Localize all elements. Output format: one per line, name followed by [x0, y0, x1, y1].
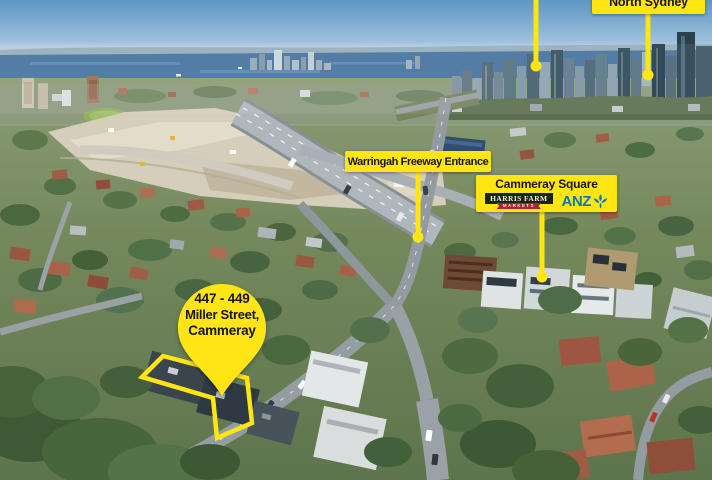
harris-farm-ribbon: MARKETS [497, 203, 541, 209]
aerial-photo-background [0, 0, 712, 480]
anz-symbol-icon [593, 194, 608, 209]
aerial-listing-photo: 447 - 449 Miller Street, Cammeray North … [0, 0, 712, 480]
anz-wordmark: ANZ [562, 194, 591, 209]
haze [0, 44, 712, 114]
warringah-freeway-callout-box: Warringah Freeway Entrance [345, 151, 491, 172]
anz-logo: ANZ [562, 194, 608, 209]
harris-farm-wordmark: HARRIS FARM [485, 193, 552, 204]
north-sydney-callout-box: North Sydney [592, 0, 705, 14]
north-sydney-label: North Sydney [609, 0, 688, 9]
cammeray-square-logos: HARRIS FARM MARKETS ANZ [485, 193, 608, 209]
cammeray-square-callout-box: Cammeray Square HARRIS FARM MARKETS ANZ [476, 175, 617, 212]
warringah-freeway-label: Warringah Freeway Entrance [348, 156, 489, 168]
harris-farm-logo: HARRIS FARM MARKETS [485, 193, 552, 209]
cammeray-square-title: Cammeray Square [495, 178, 597, 191]
